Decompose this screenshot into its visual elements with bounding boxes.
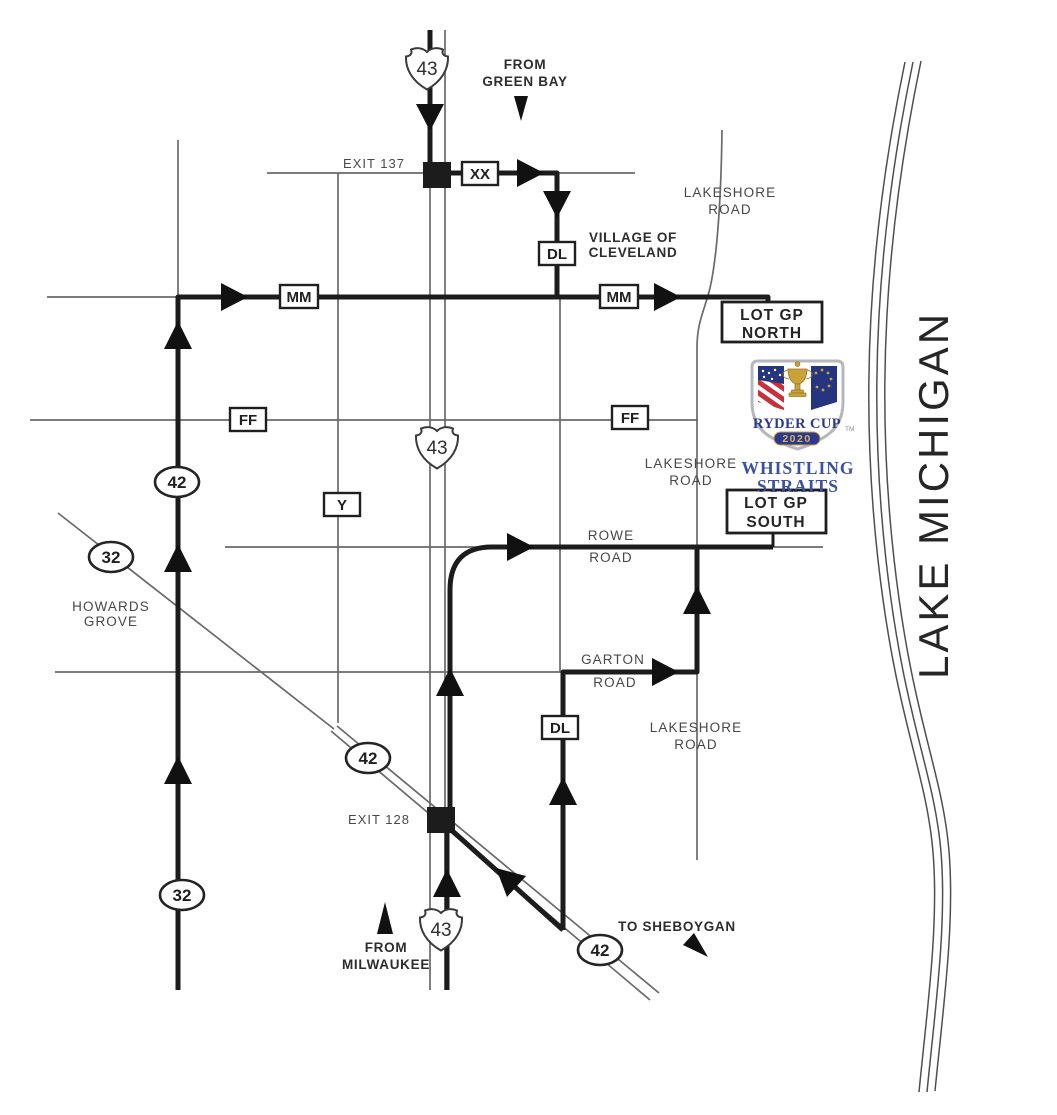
arrow-down-dl-north <box>543 191 571 218</box>
logo-trademark: TM <box>845 426 854 433</box>
county-xx-label: XX <box>470 166 490 183</box>
wi42-exit-number: 42 <box>359 749 378 768</box>
venue-name-line1: WHISTLING <box>741 458 854 478</box>
arrow-down-i43-top <box>416 104 444 131</box>
lakeshore-road-north-line2: ROAD <box>708 202 751 217</box>
i43-shield-mid-number: 43 <box>426 438 447 459</box>
county-mm-west-label: MM <box>287 289 312 306</box>
from-milwaukee-line2: MILWAUKEE <box>342 957 430 972</box>
county-mm-east-label: MM <box>607 289 632 306</box>
lot-gp-north-line1: LOT GP <box>740 307 804 324</box>
exit-128-interchange-square <box>427 807 455 833</box>
route-xx-to-dl-north <box>451 173 557 297</box>
rowe-road-line2: ROAD <box>589 550 632 565</box>
lakeshore-road-mid-line2: ROAD <box>669 473 712 488</box>
arrow-up-wi42-2 <box>164 544 192 572</box>
county-marker-dl-north: DL <box>539 242 575 265</box>
rowe-road-line1: ROWE <box>588 528 634 543</box>
logo-event-name: RYDER CUP <box>753 416 841 432</box>
arrow-down-from-green-bay <box>514 96 528 121</box>
lakeshore-road-south-line2: ROAD <box>674 737 717 752</box>
directions-map: LOT GP NORTH LOT GP SOUTH 43 43 43 42 32… <box>0 0 1057 1115</box>
lot-gp-north-line2: NORTH <box>742 325 802 342</box>
county-dl-south-label: DL <box>550 720 570 737</box>
county-marker-ff-west: FF <box>230 408 266 431</box>
wi42-shield-west: 42 <box>155 467 199 497</box>
map-canvas: LOT GP NORTH LOT GP SOUTH 43 43 43 42 32… <box>0 0 1057 1115</box>
exit-128-label: EXIT 128 <box>348 812 410 827</box>
howards-grove-line1: HOWARDS <box>72 599 150 614</box>
lot-gp-north-box: LOT GP NORTH <box>722 302 822 342</box>
county-marker-mm-east: MM <box>600 285 638 308</box>
arrow-up-i43-bottom <box>433 869 461 897</box>
arrow-right-mm-east <box>654 283 681 311</box>
lot-gp-south-line1: LOT GP <box>744 495 808 512</box>
wi32-diagonal-number: 32 <box>102 548 121 567</box>
county-y-label: Y <box>337 497 347 514</box>
arrow-right-mm-west <box>221 283 248 311</box>
county-marker-mm-west: MM <box>280 285 318 308</box>
wi42-west-number: 42 <box>168 473 187 492</box>
route-wi42-mm-to-lot-north <box>178 297 768 990</box>
lot-gp-south-line2: SOUTH <box>746 514 805 531</box>
to-sheboygan-label: TO SHEBOYGAN <box>618 919 736 934</box>
village-of-cleveland-line1: VILLAGE OF <box>589 230 677 245</box>
arrow-right-xx <box>517 159 544 187</box>
arrow-up-wi42-3 <box>164 756 192 784</box>
lake-michigan-label: LAKE MICHIGAN <box>910 311 957 679</box>
lot-gp-south-box: LOT GP SOUTH <box>727 490 826 533</box>
lakeshore-road-north-line1: LAKESHORE <box>684 185 776 200</box>
exit-137-label: EXIT 137 <box>343 156 405 171</box>
garton-road-line1: GARTON <box>581 652 645 667</box>
logo-year: 2020 <box>782 433 811 445</box>
county-dl-north-label: DL <box>547 246 567 263</box>
ryder-cup-logo: RYDER CUP 2020 TM WHISTLING STRAITS <box>741 361 855 496</box>
i43-shield-mid: 43 <box>416 427 458 468</box>
wi42-shield-southeast: 42 <box>578 935 622 965</box>
from-green-bay-line2: GREEN BAY <box>482 74 567 89</box>
wi32-south-number: 32 <box>173 886 192 905</box>
garton-road-line2: ROAD <box>593 675 636 690</box>
howards-grove-line2: GROVE <box>84 614 138 629</box>
wi32-shield-south: 32 <box>160 880 204 910</box>
wi42-southeast-number: 42 <box>591 941 610 960</box>
exit-137-interchange-square <box>423 162 451 188</box>
village-of-cleveland-line2: CLEVELAND <box>589 245 678 260</box>
wi32-shield-diagonal: 32 <box>89 542 133 572</box>
i43-shield-top-number: 43 <box>416 59 437 80</box>
i43-shield-bottom-number: 43 <box>430 920 451 941</box>
county-ff-east-label: FF <box>621 410 639 427</box>
county-marker-y: Y <box>324 493 360 516</box>
from-green-bay-line1: FROM <box>504 57 547 72</box>
arrow-up-dl-south <box>549 777 577 805</box>
arrow-up-from-milwaukee <box>377 902 393 934</box>
arrow-se-to-sheboygan <box>683 933 708 957</box>
arrow-up-wi42-1 <box>164 321 192 349</box>
i43-shield-top: 43 <box>406 48 448 89</box>
wi42-shield-exit: 42 <box>346 743 390 773</box>
county-marker-ff-east: FF <box>612 406 648 429</box>
arrow-right-garton <box>652 658 679 686</box>
venue-name-line2: STRAITS <box>757 476 839 496</box>
from-milwaukee-line1: FROM <box>365 940 408 955</box>
county-ff-west-label: FF <box>239 412 257 429</box>
i43-shield-bottom: 43 <box>420 909 462 950</box>
arrow-right-rowe <box>507 533 534 561</box>
county-marker-dl-south: DL <box>542 716 578 739</box>
lakeshore-road-south-line1: LAKESHORE <box>650 720 742 735</box>
lakeshore-road-mid-line1: LAKESHORE <box>645 456 737 471</box>
arrow-up-lakeshore <box>683 586 711 614</box>
county-marker-xx: XX <box>462 162 498 185</box>
